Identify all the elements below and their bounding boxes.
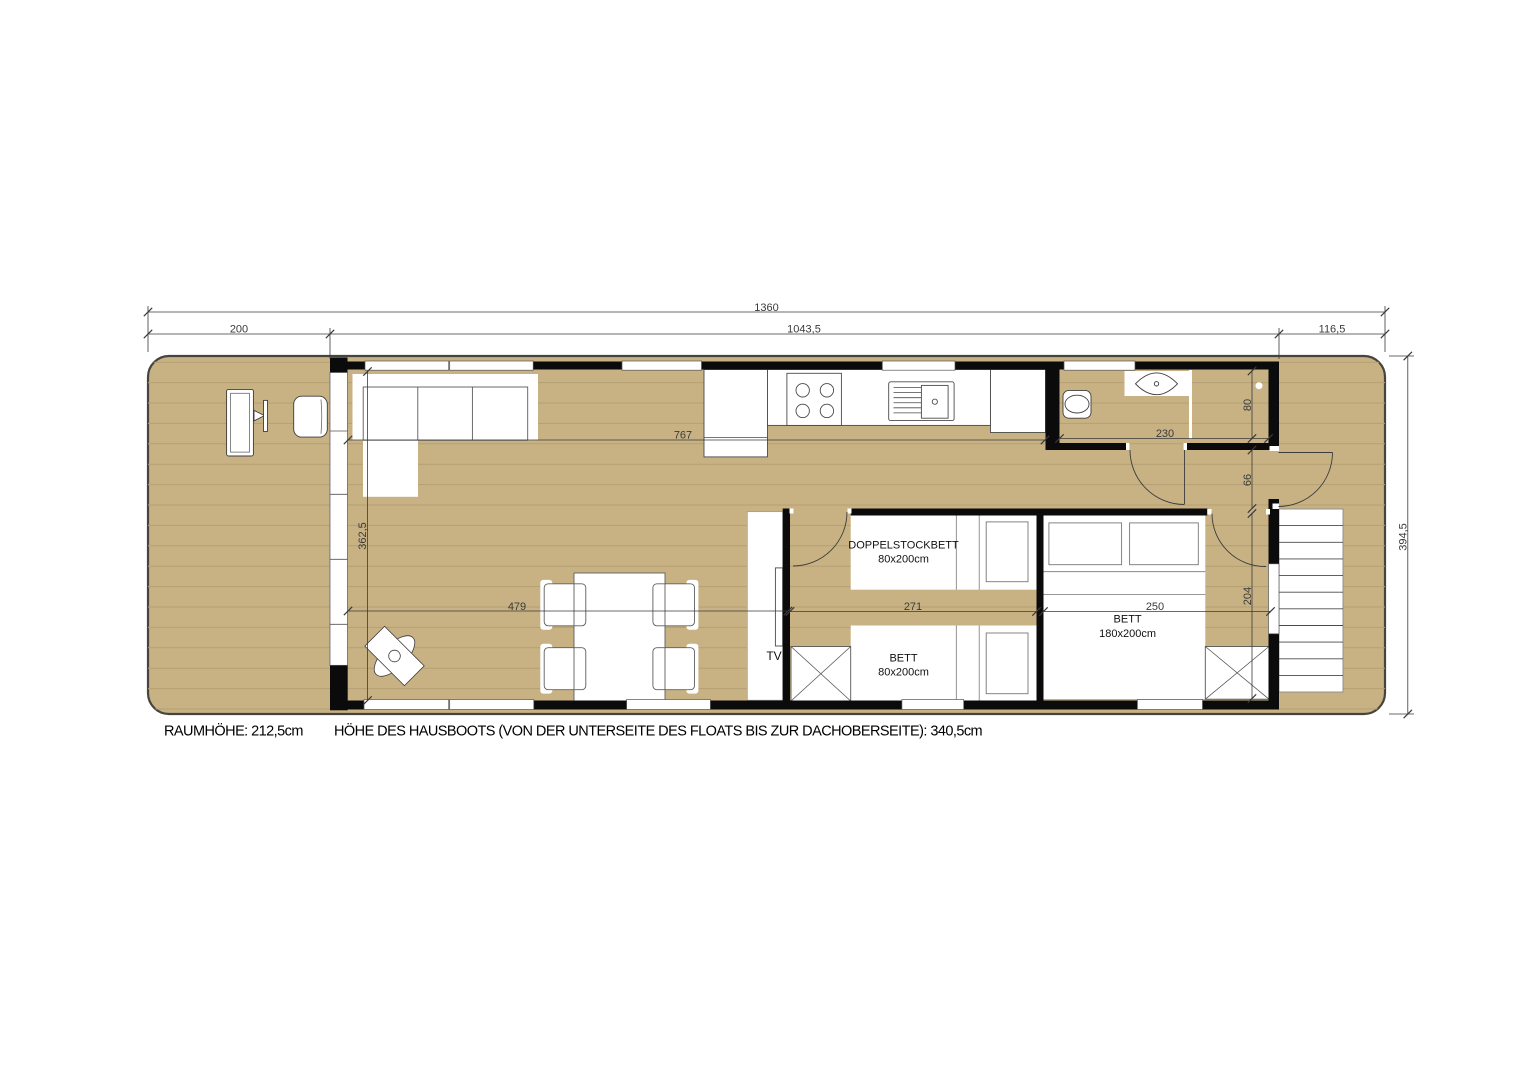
svg-text:767: 767: [674, 430, 692, 442]
svg-text:80x200cm: 80x200cm: [878, 554, 929, 566]
svg-text:230: 230: [1156, 428, 1174, 440]
svg-text:180x200cm: 180x200cm: [1099, 628, 1156, 640]
svg-text:116,5: 116,5: [1319, 324, 1346, 336]
svg-text:RAUMHÖHE: 212,5cm: RAUMHÖHE: 212,5cm: [164, 722, 303, 740]
svg-text:BETT: BETT: [1114, 614, 1142, 626]
svg-text:362,5: 362,5: [357, 522, 369, 550]
svg-text:271: 271: [904, 601, 922, 613]
svg-text:394,5: 394,5: [1397, 523, 1409, 551]
svg-text:66: 66: [1242, 474, 1254, 486]
svg-text:1043,5: 1043,5: [787, 324, 821, 336]
svg-text:200: 200: [230, 324, 248, 336]
svg-text:HÖHE DES HAUSBOOTS (VON DER UN: HÖHE DES HAUSBOOTS (VON DER UNTERSEITE D…: [334, 722, 983, 740]
svg-text:80x200cm: 80x200cm: [878, 667, 929, 679]
svg-text:80: 80: [1242, 399, 1254, 411]
svg-text:TV: TV: [766, 649, 781, 663]
svg-text:1360: 1360: [754, 302, 778, 314]
svg-text:204: 204: [1242, 587, 1254, 605]
svg-text:DOPPELSTOCKBETT: DOPPELSTOCKBETT: [848, 540, 959, 552]
svg-text:BETT: BETT: [889, 653, 917, 665]
svg-text:250: 250: [1146, 601, 1164, 613]
svg-text:479: 479: [508, 601, 526, 613]
